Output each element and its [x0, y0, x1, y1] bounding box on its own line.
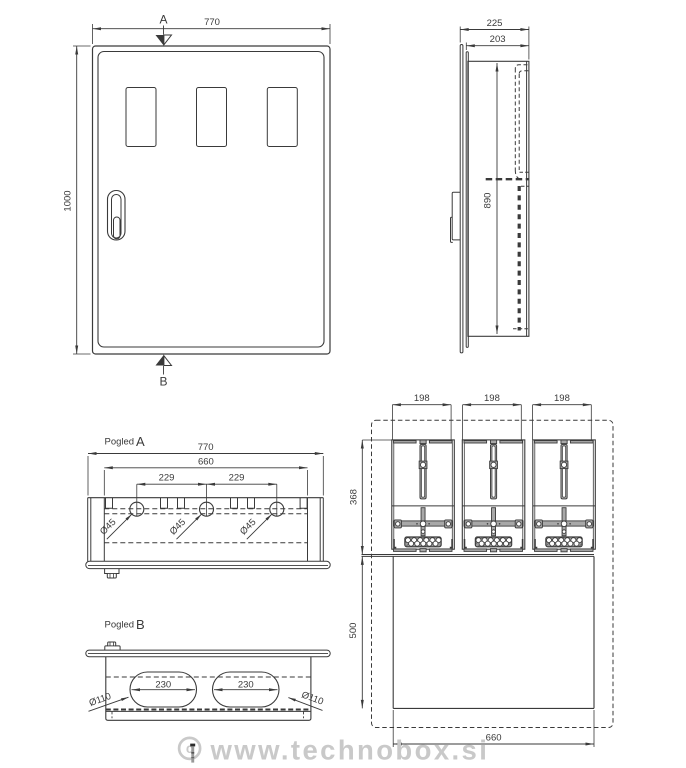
svg-text:230: 230: [155, 680, 171, 691]
svg-text:229: 229: [159, 473, 175, 484]
svg-text:198: 198: [414, 393, 430, 404]
svg-text:Pogled: Pogled: [105, 620, 135, 631]
svg-text:660: 660: [198, 456, 214, 467]
svg-text:203: 203: [490, 34, 506, 45]
svg-text:229: 229: [229, 473, 245, 484]
svg-text:A: A: [136, 434, 145, 449]
svg-text:890: 890: [483, 193, 494, 209]
svg-text:B: B: [159, 375, 167, 389]
svg-text:225: 225: [487, 18, 503, 29]
svg-text:Pogled: Pogled: [105, 437, 135, 448]
svg-text:198: 198: [554, 393, 570, 404]
svg-text:500: 500: [348, 623, 359, 639]
svg-text:770: 770: [204, 17, 220, 28]
svg-text:198: 198: [484, 393, 500, 404]
svg-text:368: 368: [348, 489, 359, 505]
svg-text:770: 770: [198, 442, 214, 453]
svg-text:1000: 1000: [63, 190, 74, 211]
svg-text:A: A: [159, 13, 167, 27]
svg-text:B: B: [136, 617, 145, 632]
svg-text:www.technobox.si: www.technobox.si: [210, 735, 490, 766]
svg-text:230: 230: [238, 680, 254, 691]
